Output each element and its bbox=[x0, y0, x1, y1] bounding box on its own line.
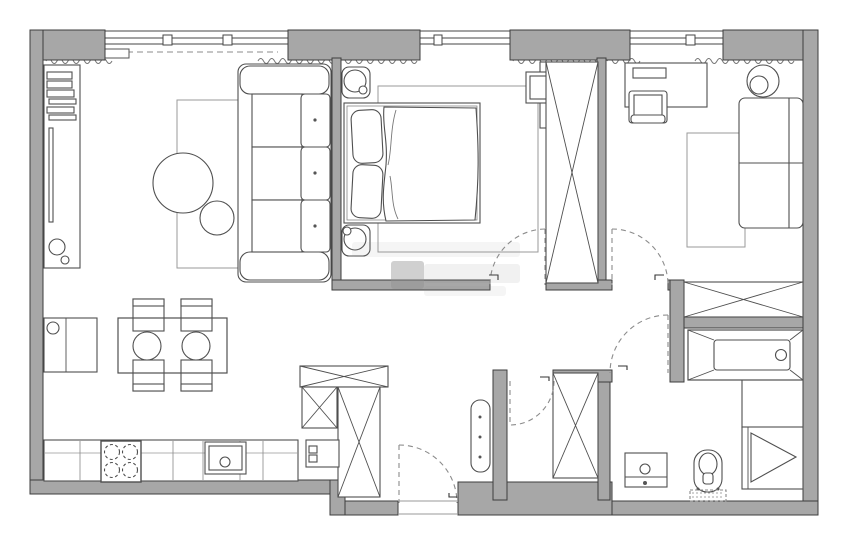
floor-plan bbox=[0, 0, 850, 550]
plate bbox=[133, 332, 161, 360]
sofa-armrest-top bbox=[240, 66, 329, 94]
kitchen-counter bbox=[44, 440, 298, 481]
plate bbox=[182, 332, 210, 360]
wall-corridor-east bbox=[670, 280, 684, 382]
sofa-button bbox=[313, 118, 316, 121]
hall-radiator-dot bbox=[479, 416, 482, 419]
hall-radiator-dot bbox=[479, 436, 482, 439]
nightstand-lamp-small bbox=[359, 86, 367, 94]
dining-chair-back bbox=[133, 384, 164, 391]
wall-living-bedroom bbox=[332, 58, 341, 290]
window-mullion bbox=[686, 35, 695, 45]
bathroom-sink-dot bbox=[643, 481, 647, 485]
decor-vase bbox=[49, 239, 65, 255]
wall-bottom-right bbox=[612, 501, 818, 515]
bathroom-sink-drain bbox=[640, 464, 650, 474]
sofa-seat bbox=[252, 94, 302, 147]
door-jamb-mark bbox=[540, 377, 549, 381]
bathtub-drain bbox=[776, 350, 787, 361]
wall-top-pier-2 bbox=[510, 30, 630, 60]
office-closet-x bbox=[684, 282, 803, 317]
wall-closetroom-west bbox=[493, 370, 507, 500]
sofa-seat bbox=[252, 200, 302, 252]
wall-closetroom-east bbox=[598, 382, 610, 500]
side-cabinet-plant bbox=[47, 322, 59, 334]
decor-vase-small bbox=[61, 256, 69, 264]
closet-wardrobe-x bbox=[553, 373, 598, 478]
toilet-flush bbox=[703, 473, 713, 484]
office-laptop bbox=[633, 68, 666, 78]
sofa-button bbox=[313, 171, 316, 174]
sofa-armrest-bottom bbox=[240, 252, 329, 280]
office-door-arc bbox=[612, 229, 668, 285]
wall-top-pier-1 bbox=[288, 30, 420, 60]
bedroom-wardrobe-x bbox=[546, 62, 598, 283]
window-mullion bbox=[434, 35, 442, 45]
window-living bbox=[105, 31, 288, 44]
office-rug bbox=[687, 133, 745, 247]
nightstand-lamp-small bbox=[343, 227, 351, 235]
wall-closet-south bbox=[684, 317, 803, 328]
sofa-seat bbox=[252, 147, 302, 200]
watermark-blob bbox=[391, 261, 424, 289]
door-jamb-mark bbox=[618, 366, 627, 370]
bed-pillow bbox=[351, 164, 384, 218]
entry-door-arc bbox=[399, 445, 457, 503]
hall-cabinet-x bbox=[300, 366, 388, 387]
window-mullion bbox=[163, 35, 172, 45]
toilet-bowl bbox=[699, 453, 717, 475]
hall-wardrobe-x bbox=[338, 387, 380, 497]
watermark-blob bbox=[352, 242, 520, 257]
coffee-table-small bbox=[200, 201, 234, 235]
office-chair-base bbox=[631, 115, 665, 123]
hall-radiator-dot bbox=[479, 456, 482, 459]
sofa-button bbox=[313, 224, 316, 227]
window-mullion bbox=[223, 35, 232, 45]
round-chair-inner bbox=[750, 76, 768, 94]
wall-bottom-closet bbox=[458, 482, 612, 515]
dining-chair-back bbox=[181, 299, 212, 306]
bed-pillow bbox=[351, 109, 384, 163]
closet-door-arc bbox=[510, 381, 554, 425]
wall-left bbox=[30, 30, 43, 494]
watermark-blob bbox=[424, 264, 520, 283]
hall-cabinet-x-small bbox=[302, 387, 337, 428]
watermark-blob bbox=[424, 286, 506, 296]
floor-plan-page bbox=[0, 0, 850, 550]
kitchen-sink-drain bbox=[220, 457, 230, 467]
door-jamb-mark bbox=[655, 275, 664, 280]
wall-right bbox=[803, 30, 818, 515]
coffee-table-large bbox=[153, 153, 213, 213]
wall-bottom-entry-left bbox=[345, 501, 398, 515]
bathroom-door-arc bbox=[610, 315, 668, 373]
dining-chair-back bbox=[181, 384, 212, 391]
wall-bottom-kitchen bbox=[30, 480, 345, 494]
dining-chair-back bbox=[133, 299, 164, 306]
bed-duvet bbox=[383, 107, 478, 221]
window-office bbox=[630, 31, 723, 44]
